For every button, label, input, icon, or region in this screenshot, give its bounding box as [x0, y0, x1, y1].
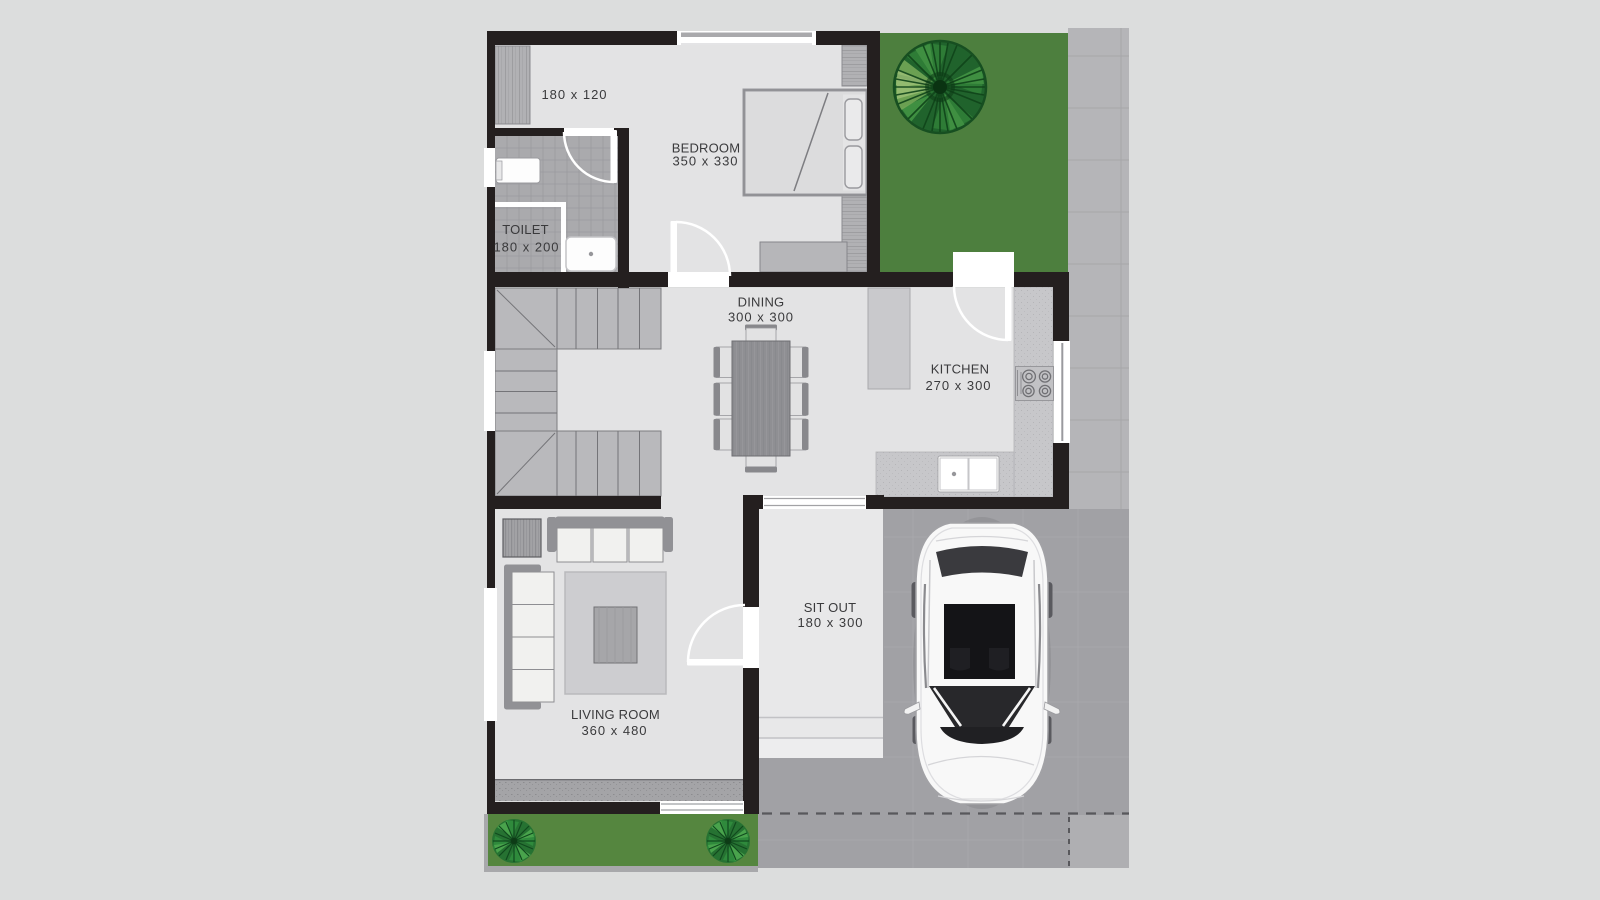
svg-text:350 x 330: 350 x 330 — [672, 154, 738, 169]
svg-text:360 x 480: 360 x 480 — [581, 723, 647, 738]
svg-text:180 x 120: 180 x 120 — [541, 87, 607, 102]
svg-text:180 x 300: 180 x 300 — [797, 615, 863, 630]
svg-text:300 x 300: 300 x 300 — [728, 310, 794, 325]
svg-text:KITCHEN: KITCHEN — [931, 362, 989, 377]
svg-text:DINING: DINING — [738, 295, 785, 310]
svg-text:270 x 300: 270 x 300 — [925, 378, 991, 393]
svg-text:LIVING ROOM: LIVING ROOM — [571, 707, 660, 722]
svg-text:TOILET: TOILET — [502, 222, 548, 237]
svg-text:180 x 200: 180 x 200 — [493, 240, 559, 255]
svg-text:SIT OUT: SIT OUT — [804, 600, 856, 615]
